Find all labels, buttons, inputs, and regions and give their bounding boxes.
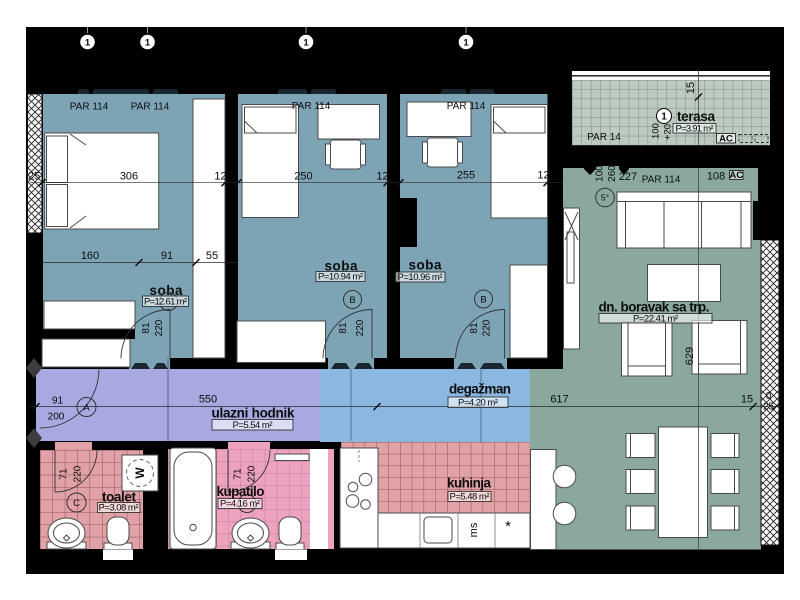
- svg-text:PAR 14: PAR 14: [587, 132, 621, 143]
- svg-text:5°: 5°: [601, 193, 609, 203]
- svg-text:71: 71: [59, 468, 70, 480]
- svg-text:617: 617: [550, 394, 568, 406]
- svg-text:B: B: [349, 295, 355, 306]
- svg-text:PAR 114: PAR 114: [70, 102, 109, 113]
- svg-text:ms: ms: [468, 522, 480, 537]
- svg-text:200: 200: [48, 412, 65, 423]
- svg-text:91: 91: [52, 396, 64, 407]
- svg-text:1: 1: [661, 112, 667, 123]
- svg-text:C: C: [73, 498, 80, 509]
- svg-text:kuhinja: kuhinja: [447, 476, 491, 491]
- svg-text:1: 1: [463, 38, 469, 49]
- svg-text:15: 15: [741, 394, 753, 406]
- svg-text:81: 81: [469, 322, 480, 334]
- svg-text:12: 12: [376, 171, 388, 183]
- svg-text:ulazni hodnik: ulazni hodnik: [212, 406, 295, 421]
- svg-text:255: 255: [457, 170, 475, 182]
- svg-text:soba: soba: [409, 258, 442, 273]
- svg-text:P=10.94 m²: P=10.94 m²: [318, 272, 363, 283]
- svg-text:terasa: terasa: [677, 109, 715, 124]
- svg-text:12: 12: [214, 171, 226, 183]
- svg-text:306: 306: [120, 171, 138, 183]
- svg-text:260: 260: [607, 165, 618, 182]
- svg-text:12: 12: [537, 170, 549, 182]
- svg-text:W: W: [133, 467, 147, 479]
- svg-text:+20: +20: [663, 124, 674, 140]
- svg-text:227: 227: [619, 171, 637, 183]
- svg-text:PAR 114: PAR 114: [447, 101, 486, 112]
- svg-text:15: 15: [685, 82, 697, 94]
- svg-text:0: 0: [766, 391, 772, 402]
- svg-text:100: 100: [595, 165, 606, 182]
- svg-text:PAR 114: PAR 114: [131, 102, 170, 113]
- svg-text:P=3.91 m²: P=3.91 m²: [676, 124, 714, 135]
- svg-text:kupatilo: kupatilo: [217, 484, 265, 499]
- svg-text:P=5.54 m²: P=5.54 m²: [233, 420, 273, 431]
- svg-text:220: 220: [247, 465, 258, 482]
- svg-text:220: 220: [73, 465, 84, 482]
- svg-text:250: 250: [294, 171, 312, 183]
- svg-text:AC: AC: [729, 170, 743, 181]
- svg-text:1: 1: [303, 38, 309, 49]
- svg-text:1: 1: [145, 38, 151, 49]
- svg-text:P=12.61 m²: P=12.61 m²: [144, 297, 187, 308]
- svg-text:dn. boravak sa trp.: dn. boravak sa trp.: [599, 300, 710, 315]
- svg-text:81: 81: [141, 322, 152, 334]
- svg-text:160: 160: [81, 250, 99, 262]
- svg-text:P=5.48 m²: P=5.48 m²: [450, 492, 490, 503]
- svg-text:P=10.96 m²: P=10.96 m²: [398, 272, 443, 283]
- svg-text:P=3.08 m²: P=3.08 m²: [99, 503, 139, 514]
- svg-text:108: 108: [707, 171, 725, 183]
- svg-text:PAR 114: PAR 114: [292, 101, 331, 112]
- svg-text:25: 25: [763, 402, 775, 413]
- svg-text:P=4.20 m²: P=4.20 m²: [458, 398, 498, 409]
- svg-text:220: 220: [154, 319, 165, 336]
- svg-text:81: 81: [338, 322, 349, 334]
- svg-text:25: 25: [28, 171, 40, 183]
- svg-text:degažman: degažman: [449, 382, 511, 397]
- svg-text:PAR 114: PAR 114: [642, 175, 681, 186]
- svg-text:P=4.16 m²: P=4.16 m²: [220, 499, 260, 510]
- svg-text:550: 550: [199, 394, 217, 406]
- svg-text:220: 220: [355, 319, 366, 336]
- svg-text:91: 91: [161, 250, 173, 262]
- svg-text:AC: AC: [719, 134, 733, 145]
- svg-text:A: A: [83, 403, 90, 414]
- svg-text:71: 71: [233, 468, 244, 480]
- svg-text:*: *: [505, 518, 511, 535]
- svg-text:P=22.41 m²: P=22.41 m²: [633, 314, 678, 325]
- svg-text:100: 100: [651, 123, 662, 139]
- svg-text:220: 220: [482, 319, 493, 336]
- svg-text:629: 629: [684, 347, 696, 365]
- svg-text:1: 1: [85, 38, 91, 49]
- svg-text:55: 55: [206, 250, 218, 262]
- svg-text:B: B: [480, 295, 486, 306]
